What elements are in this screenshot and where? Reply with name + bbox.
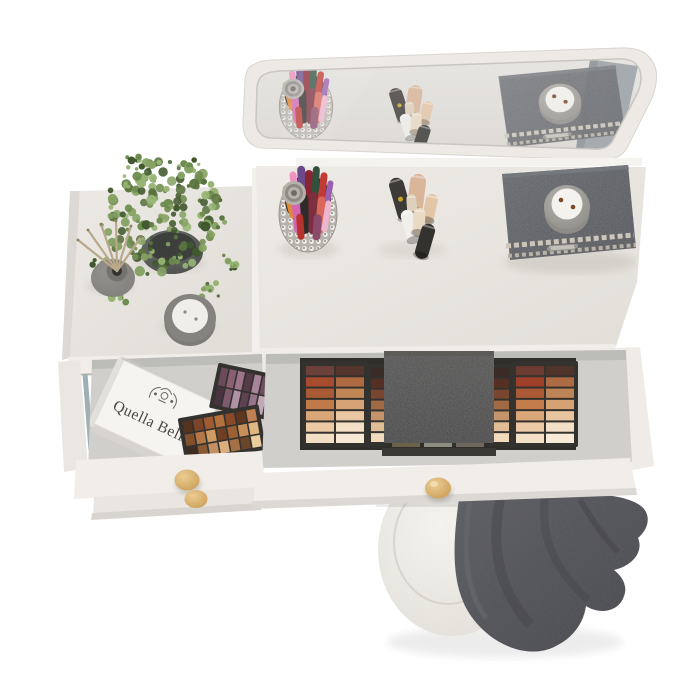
leaf [148, 161, 156, 169]
candle-wick [571, 205, 576, 210]
eyeshadow-pan [546, 422, 574, 431]
leaf [149, 222, 155, 228]
leaf [89, 262, 95, 268]
leaf [152, 260, 159, 267]
leaf [156, 184, 165, 193]
leaf [122, 299, 129, 306]
leaf [138, 187, 146, 195]
eyeshadow-pan [336, 400, 364, 409]
leaf [158, 258, 165, 265]
leaf [169, 257, 176, 264]
leaf [179, 211, 186, 218]
eyeshadow-pan [516, 400, 544, 409]
leaf [163, 186, 169, 192]
eyeshadow-pan [546, 400, 574, 409]
leaf [128, 156, 136, 164]
tube-crimp [407, 197, 415, 198]
leaf [158, 167, 167, 176]
drawer-knob [185, 490, 208, 508]
candle-wax [552, 189, 583, 220]
tubes-shadow [378, 242, 446, 258]
leaf [126, 165, 130, 169]
eyeshadow-pan [306, 366, 334, 375]
eyeshadow-pan [493, 379, 509, 388]
leaf [178, 252, 182, 256]
eyeshadow-pan [336, 377, 364, 386]
leaf [177, 166, 181, 170]
vanity-render: Quella Bella [0, 0, 700, 700]
leaf [197, 163, 200, 166]
leaf [222, 254, 225, 257]
leaf [199, 244, 207, 252]
leaf [180, 218, 189, 227]
leaf [216, 225, 220, 229]
leaf [222, 220, 227, 225]
leaf [187, 184, 191, 188]
leaf [174, 235, 178, 239]
reed-tip [130, 225, 133, 228]
eyeshadow-pan [516, 411, 544, 420]
scene-svg: Quella Bella [0, 0, 700, 700]
leaf [141, 253, 149, 261]
leaf [201, 178, 207, 184]
leaf [208, 181, 215, 188]
leaf [164, 206, 171, 213]
eyeshadow-pan [336, 366, 364, 375]
candle-wick [559, 198, 564, 203]
leaf [182, 263, 188, 269]
tube-crimp [415, 211, 425, 212]
leaf [135, 154, 142, 161]
reed-tip [140, 236, 143, 239]
eyeshadow-pan [493, 368, 509, 377]
eyeshadow-pan [516, 434, 544, 443]
eyeshadow-pan [546, 434, 574, 443]
leaf [127, 185, 131, 189]
leaf [200, 222, 210, 232]
eyeshadow-pan [336, 389, 364, 398]
leaf [135, 266, 145, 276]
leaf [150, 236, 154, 240]
leaf [145, 272, 149, 276]
eyeshadow-pan [306, 389, 334, 398]
leaf [173, 205, 180, 212]
jar-wax [172, 299, 208, 333]
eyeshadow-pan [516, 422, 544, 431]
leaf [108, 194, 117, 203]
back-rail [296, 158, 642, 166]
leaf [201, 287, 206, 292]
leaf [177, 172, 185, 180]
leaf [120, 211, 126, 217]
leaf [181, 241, 188, 248]
diffuser-reed [116, 221, 117, 271]
leaf [132, 172, 141, 181]
leaf [169, 220, 176, 227]
eyeshadow-pan [546, 366, 574, 375]
case-lid-edge [384, 351, 494, 356]
case-bottom-bar [382, 448, 496, 456]
reed-tip [100, 223, 103, 226]
leaf [201, 191, 210, 200]
eyeshadow-pan [336, 422, 364, 431]
leaf [121, 218, 130, 227]
drawer-knob [175, 470, 200, 491]
eyeshadow-pan [336, 434, 364, 443]
center-drawer [262, 350, 632, 468]
drawer-knob [425, 478, 451, 499]
eyeshadow-pan [493, 390, 509, 399]
knob-highlight [430, 481, 438, 487]
rolled-brush [282, 181, 306, 205]
leaf [171, 227, 177, 233]
leaf [160, 202, 166, 208]
leaf [200, 198, 208, 206]
eyeshadow-pan [336, 411, 364, 420]
eyeshadow-pan [516, 366, 544, 375]
leaf [213, 280, 219, 286]
leaf [109, 205, 114, 210]
eyeshadow-pan [516, 377, 544, 386]
case-lid [384, 351, 494, 443]
leaf [146, 195, 156, 205]
leaf [230, 261, 234, 265]
leaf [148, 254, 153, 259]
leaf [156, 218, 162, 224]
eyeshadow-pan [493, 411, 509, 420]
leaf [168, 160, 172, 164]
leaf [108, 213, 114, 219]
eyeshadow-pan [493, 401, 509, 410]
leaf [208, 289, 212, 293]
eyeshadow-pan [546, 389, 574, 398]
eyeshadow-pan [493, 422, 509, 431]
reed-tip [77, 239, 80, 242]
leaf [135, 167, 138, 170]
leaf [173, 197, 181, 205]
left-drawer-front [74, 451, 265, 520]
leaf [208, 203, 216, 211]
reed-tip [115, 220, 118, 223]
leaf [189, 179, 199, 189]
case-right-strip-grid [493, 368, 509, 442]
jar-wick [183, 310, 186, 313]
makeup-train-case [300, 351, 578, 456]
jewelry-box [502, 165, 636, 260]
leaf [148, 246, 153, 251]
eyeshadow-pan [306, 411, 334, 420]
leaf [125, 204, 133, 212]
leaf [171, 211, 176, 216]
leaf [205, 282, 209, 286]
leaf [156, 160, 161, 165]
reed-tip [87, 229, 90, 232]
eyeshadow-pan [306, 422, 334, 431]
leaf [118, 227, 126, 235]
eyeshadow-pan [306, 434, 334, 443]
eyeshadow-pan [493, 433, 509, 442]
leaf [123, 174, 127, 178]
leaf [149, 241, 153, 245]
eyeshadow-pan [546, 377, 574, 386]
eyeshadow-pan [516, 389, 544, 398]
leaf [166, 242, 171, 247]
eyeshadow-pan [306, 400, 334, 409]
eyeshadow-pan [546, 411, 574, 420]
leaf [132, 214, 140, 222]
twin-wick-candle [544, 185, 590, 234]
leaf [167, 176, 176, 185]
leaf [209, 232, 215, 238]
jar-wick [194, 317, 197, 320]
eyeshadow-pan [306, 377, 334, 386]
leaf [187, 167, 193, 173]
leaf [157, 267, 167, 277]
leaf [200, 211, 205, 216]
leaf [139, 163, 145, 169]
leaf [188, 259, 196, 267]
leaf [191, 157, 197, 163]
leaf [180, 203, 188, 211]
leaf [141, 240, 146, 245]
leaf [149, 174, 157, 182]
jar-candle [164, 294, 216, 346]
leaf [195, 171, 204, 180]
leaf [176, 185, 186, 195]
leaf [217, 294, 220, 297]
leaf [187, 241, 194, 248]
leaf [211, 194, 221, 204]
leaf [118, 296, 123, 301]
leaf [108, 188, 114, 194]
